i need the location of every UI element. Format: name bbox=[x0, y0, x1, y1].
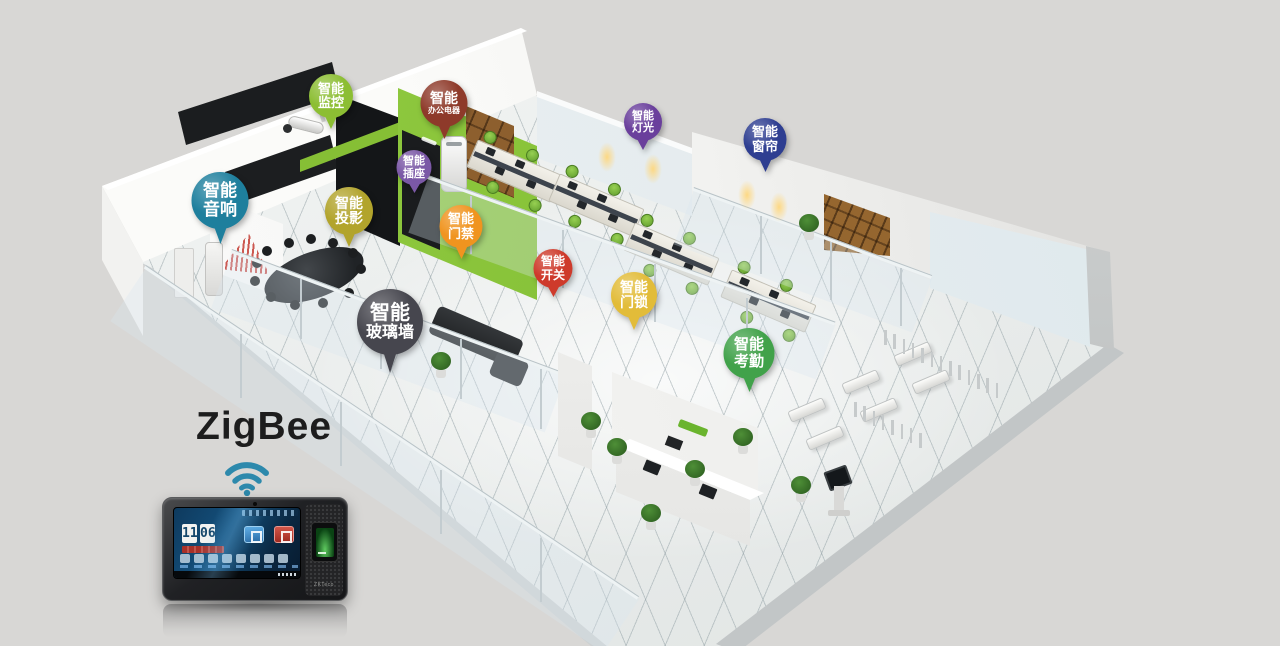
plant-pot bbox=[690, 478, 700, 486]
plant-foliage bbox=[685, 460, 705, 478]
plant-foliage bbox=[791, 476, 811, 494]
glass-post bbox=[300, 279, 302, 339]
clock-hour: 11 bbox=[182, 524, 197, 543]
callout-line2: 门禁 bbox=[448, 227, 474, 241]
potted-plant bbox=[798, 214, 820, 240]
device-camera-icon bbox=[253, 502, 257, 506]
callout-line2: 门锁 bbox=[620, 295, 648, 310]
glass-post bbox=[240, 334, 242, 398]
plant-foliage bbox=[431, 352, 451, 370]
device-taskbar bbox=[174, 571, 300, 578]
callout-pin-monitoring: 智能监控 bbox=[309, 74, 353, 129]
callout-line2: 窗帘 bbox=[752, 140, 778, 154]
plant-pot bbox=[804, 232, 814, 240]
glass-post bbox=[540, 538, 542, 602]
glass-post bbox=[340, 402, 342, 466]
clock-minute: 06 bbox=[200, 524, 215, 543]
app-labels bbox=[180, 565, 298, 568]
potted-plant bbox=[606, 438, 628, 464]
callout-pin-door-lock: 智能门锁 bbox=[611, 272, 657, 330]
conference-chair bbox=[356, 264, 366, 274]
callout-line1: 智能 bbox=[403, 155, 425, 167]
potted-plant bbox=[790, 476, 812, 502]
potted-plant bbox=[430, 352, 452, 378]
fence-bar bbox=[949, 361, 952, 376]
callout-line2: 办公电器 bbox=[428, 107, 460, 116]
device-brand: ZKTeco bbox=[307, 582, 341, 588]
conference-chair bbox=[262, 246, 272, 256]
fence-bar bbox=[977, 374, 980, 389]
date-banner bbox=[182, 546, 224, 553]
fence-bar bbox=[968, 370, 971, 385]
desk-monitor bbox=[643, 459, 662, 475]
fence-bar bbox=[863, 406, 866, 421]
plant-foliage bbox=[607, 438, 627, 456]
device-statusbar bbox=[242, 510, 298, 516]
kiosk-stand bbox=[834, 486, 844, 512]
callout-line1: 智能 bbox=[203, 182, 237, 201]
kiosk-base bbox=[828, 510, 850, 516]
turnstile-gate bbox=[805, 425, 845, 451]
callout-line2: 音响 bbox=[203, 201, 237, 220]
app-icon-blue bbox=[244, 526, 264, 543]
callout-pin-glass-wall: 智能玻璃墙 bbox=[357, 289, 423, 373]
plant-pot bbox=[586, 430, 596, 438]
callout-pin-lighting: 智能灯光 bbox=[624, 103, 662, 150]
potted-plant bbox=[640, 504, 662, 530]
callout-pin-curtain: 智能窗帘 bbox=[744, 118, 787, 172]
fence-bar bbox=[873, 411, 876, 426]
callout-pin-attendance: 智能考勤 bbox=[724, 328, 775, 392]
glass-post bbox=[760, 216, 762, 274]
zigbee-title: ZigBee bbox=[196, 405, 332, 449]
fence-bar bbox=[882, 415, 885, 430]
fingerprint-sensor-icon bbox=[311, 522, 338, 562]
callout-pin-audio: 智能音响 bbox=[192, 172, 249, 244]
potted-plant bbox=[684, 460, 706, 486]
callout-pin-switch: 智能开关 bbox=[534, 249, 573, 297]
callout-line2: 监控 bbox=[318, 96, 344, 110]
fence-bar bbox=[854, 402, 857, 417]
glass-post bbox=[830, 242, 832, 300]
reception-sign bbox=[665, 435, 684, 450]
fence-bar bbox=[884, 330, 887, 345]
callout-pin-access-control: 智能门禁 bbox=[440, 205, 483, 259]
fence-bar bbox=[893, 334, 896, 349]
conference-chair bbox=[306, 234, 316, 244]
plant-pot bbox=[738, 446, 748, 454]
app-icon-red bbox=[274, 526, 294, 543]
callout-line1: 智能 bbox=[370, 302, 410, 324]
callout-line1: 智能 bbox=[448, 212, 474, 226]
callout-line1: 智能 bbox=[752, 125, 778, 139]
conference-chair bbox=[284, 238, 294, 248]
fence-bar bbox=[921, 348, 924, 363]
callout-pin-socket: 智能插座 bbox=[397, 150, 432, 193]
wifi-signal-icon bbox=[221, 456, 273, 496]
fence-bar bbox=[912, 343, 915, 358]
callout-line1: 智能 bbox=[318, 82, 344, 96]
callout-line2: 开关 bbox=[541, 269, 565, 282]
callout-line1: 智能 bbox=[430, 91, 458, 106]
glass-post bbox=[440, 470, 442, 534]
callout-line1: 智能 bbox=[335, 196, 363, 211]
fence-bar bbox=[958, 365, 961, 380]
attendance-terminal: 11 06 ZKTeco bbox=[162, 497, 348, 601]
callout-line2: 灯光 bbox=[632, 122, 654, 134]
fence-bar bbox=[901, 424, 904, 439]
fence-bar bbox=[996, 383, 999, 398]
callout-pin-office-appliance: 智能办公电器 bbox=[421, 80, 468, 139]
glass-post bbox=[900, 268, 902, 326]
plant-pot bbox=[796, 494, 806, 502]
fence-bar bbox=[986, 378, 989, 393]
glass-post bbox=[460, 339, 462, 399]
plant-pot bbox=[646, 522, 656, 530]
fence-bar bbox=[891, 420, 894, 435]
callout-line2: 考勤 bbox=[734, 354, 764, 371]
office-chair bbox=[484, 179, 501, 196]
callout-pin-projection: 智能投影 bbox=[325, 187, 373, 247]
callout-line2: 插座 bbox=[403, 168, 425, 180]
camera-lens bbox=[283, 124, 292, 133]
smart-office-scene: 智能监控智能办公电器智能插座智能灯光智能窗帘智能音响智能投影智能门禁智能开关智能… bbox=[0, 0, 1280, 646]
callout-line1: 智能 bbox=[541, 255, 565, 268]
turnstile-gate bbox=[841, 369, 881, 395]
plant-foliage bbox=[581, 412, 601, 430]
fence-bar bbox=[910, 428, 913, 443]
plant-pot bbox=[612, 456, 622, 464]
callout-line2: 玻璃墙 bbox=[366, 324, 414, 342]
wall-light-glow bbox=[598, 142, 616, 172]
callout-line1: 智能 bbox=[632, 110, 654, 122]
plant-pot bbox=[436, 370, 446, 378]
glass-post bbox=[540, 369, 542, 429]
fence-bar bbox=[940, 356, 943, 371]
plant-foliage bbox=[641, 504, 661, 522]
turnstile-gate bbox=[911, 369, 951, 395]
reception-logo bbox=[678, 419, 709, 437]
fence-bar bbox=[931, 352, 934, 367]
device-screen: 11 06 bbox=[173, 507, 301, 579]
wall-light-glow bbox=[738, 180, 756, 210]
potted-plant bbox=[580, 412, 602, 438]
app-dock bbox=[180, 554, 288, 563]
plant-foliage bbox=[733, 428, 753, 446]
wall-light-glow bbox=[644, 154, 662, 184]
turnstile-gate bbox=[787, 397, 827, 423]
potted-plant bbox=[732, 428, 754, 454]
plant-foliage bbox=[799, 214, 819, 232]
device-side-panel: ZKTeco bbox=[305, 504, 343, 596]
callout-line1: 智能 bbox=[734, 337, 764, 354]
wall-light-glow bbox=[770, 192, 788, 222]
conference-chair bbox=[348, 248, 358, 258]
callout-line1: 智能 bbox=[620, 280, 648, 295]
device-reflection bbox=[163, 604, 347, 638]
fence-bar bbox=[919, 433, 922, 448]
fence-bar bbox=[903, 339, 906, 354]
callout-line2: 投影 bbox=[335, 211, 363, 226]
